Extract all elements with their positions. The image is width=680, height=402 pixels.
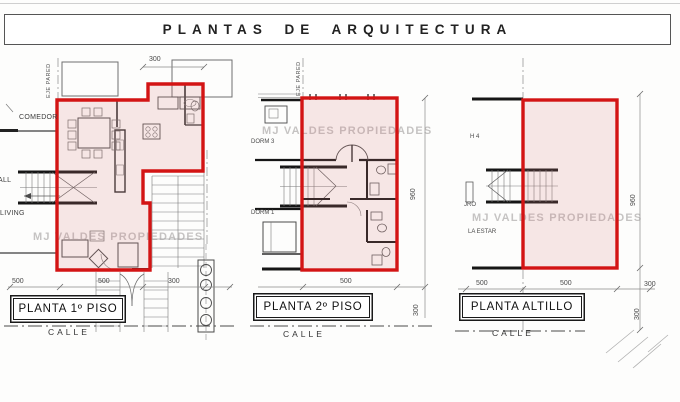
- plan2-street-label: CALLE: [283, 329, 325, 339]
- plan1-street-label: CALLE: [48, 327, 90, 337]
- plan3-dim-bottom-left: 500: [476, 280, 488, 287]
- plan2-name: PLANTA 2º PISO: [264, 301, 363, 313]
- plan1-dim-top: 300: [149, 56, 161, 63]
- plan2-room-dorm1: DORM 1: [251, 210, 274, 216]
- plan3-room-h4: H 4: [470, 134, 479, 140]
- plan3-name: PLANTA ALTILLO: [471, 301, 573, 313]
- plan2-dim-bottom: 500: [340, 278, 352, 285]
- plan3-room-la-estar: LA ESTAR: [468, 229, 496, 235]
- plan3-dim-bottom-right: 300: [644, 281, 656, 288]
- page-title: PLANTAS DE ARQUITECTURA: [163, 22, 513, 37]
- title-box: PLANTAS DE ARQUITECTURA: [4, 14, 671, 45]
- plan2-red-outline: [302, 98, 397, 270]
- plan1-dim-bottom-mid: 500: [98, 278, 110, 285]
- plan2-axis-label: EJE PARED: [296, 61, 302, 96]
- plan2-dim-right: 960: [410, 188, 417, 200]
- plan1-dim-bottom-right: 300: [168, 278, 180, 285]
- plan2-title-plate: PLANTA 2º PISO: [256, 296, 370, 318]
- plan1-room-living: LIVING: [0, 210, 25, 217]
- plan1-room-hall: ALL: [0, 177, 11, 184]
- plan1-title-plate: PLANTA 1º PISO: [13, 298, 123, 320]
- plan3-street-label: CALLE: [492, 328, 534, 338]
- plan1-axis-label: EJE PARED: [46, 63, 52, 98]
- plan1-red-outline: [57, 84, 203, 270]
- plan2-room-dorm3: DORM 3: [251, 139, 274, 145]
- plan2-dim-bottom-right-vert: 300: [413, 304, 420, 316]
- plan1-name: PLANTA 1º PISO: [19, 303, 118, 315]
- plan3-red-outline: [523, 100, 617, 268]
- architecture-plans-document: PLANTAS DE ARQUITECTURA: [0, 0, 680, 402]
- plan3-dim-right: 960: [630, 194, 637, 206]
- plan3-dim-bottom-mid: 500: [560, 280, 572, 287]
- plan3-title-plate: PLANTA ALTILLO: [462, 296, 582, 318]
- plan1-dim-bottom-left: 500: [12, 278, 24, 285]
- plan3-room-jro: JRO: [464, 202, 476, 208]
- plan1-room-comedor: COMEDOR: [19, 114, 58, 121]
- red-outline-overlay: [0, 0, 680, 402]
- plan3-dim-right-lower: 300: [634, 308, 641, 320]
